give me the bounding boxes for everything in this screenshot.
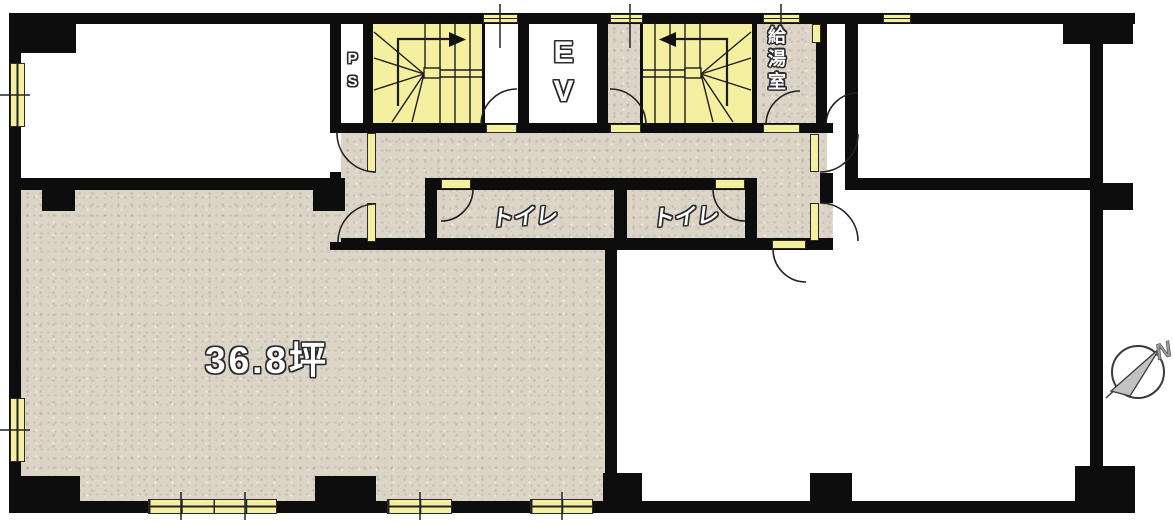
door-arc-toilet-left bbox=[441, 189, 473, 221]
staircase-right-treads bbox=[643, 23, 751, 123]
main-room-area-label: 36.8坪 bbox=[205, 330, 329, 384]
toilet-left-label: トイレ bbox=[490, 197, 560, 232]
door-arc-lobby bbox=[610, 89, 646, 125]
toilet-right-label: トイレ bbox=[651, 197, 721, 232]
door-arc-corridor-right-upper bbox=[820, 134, 858, 172]
door-arc-corridor-right-lower bbox=[820, 203, 858, 241]
door-arc-landing bbox=[481, 89, 517, 125]
kitchenette-label: 給湯室 bbox=[763, 26, 789, 110]
pipe-shaft-label: PS bbox=[344, 50, 361, 106]
door-arc-corridor-left-lower bbox=[338, 204, 376, 242]
elevator-label: EV bbox=[546, 36, 580, 120]
door-arc-corridor-left-upper bbox=[337, 133, 376, 172]
staircase-left-treads bbox=[374, 23, 482, 123]
door-arc-recess bbox=[826, 93, 858, 125]
plan-linework: N bbox=[0, 0, 1173, 524]
floor-plan: N 36.8坪 トイレ トイレ EV PS 給湯室 bbox=[0, 0, 1173, 524]
door-arc-exit bbox=[773, 249, 806, 282]
compass-icon: N bbox=[1106, 336, 1173, 398]
window-ticks bbox=[0, 4, 781, 520]
door-arcs bbox=[337, 89, 858, 282]
